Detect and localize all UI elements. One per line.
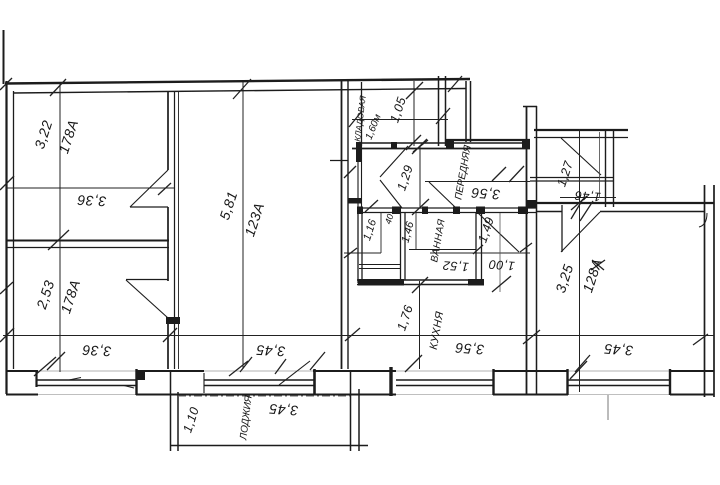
svg-text:3,45: 3,45 [604, 341, 634, 359]
svg-text:3,36: 3,36 [77, 192, 107, 210]
svg-text:1,46: 1,46 [574, 188, 601, 204]
svg-text:3,45: 3,45 [256, 342, 286, 360]
svg-text:3,56: 3,56 [471, 185, 501, 203]
svg-text:3,45: 3,45 [269, 401, 299, 419]
svg-text:3,56: 3,56 [455, 340, 485, 358]
svg-text:3,36: 3,36 [82, 342, 112, 360]
svg-text:1,00: 1,00 [488, 257, 515, 273]
svg-text:1,52: 1,52 [442, 258, 469, 274]
